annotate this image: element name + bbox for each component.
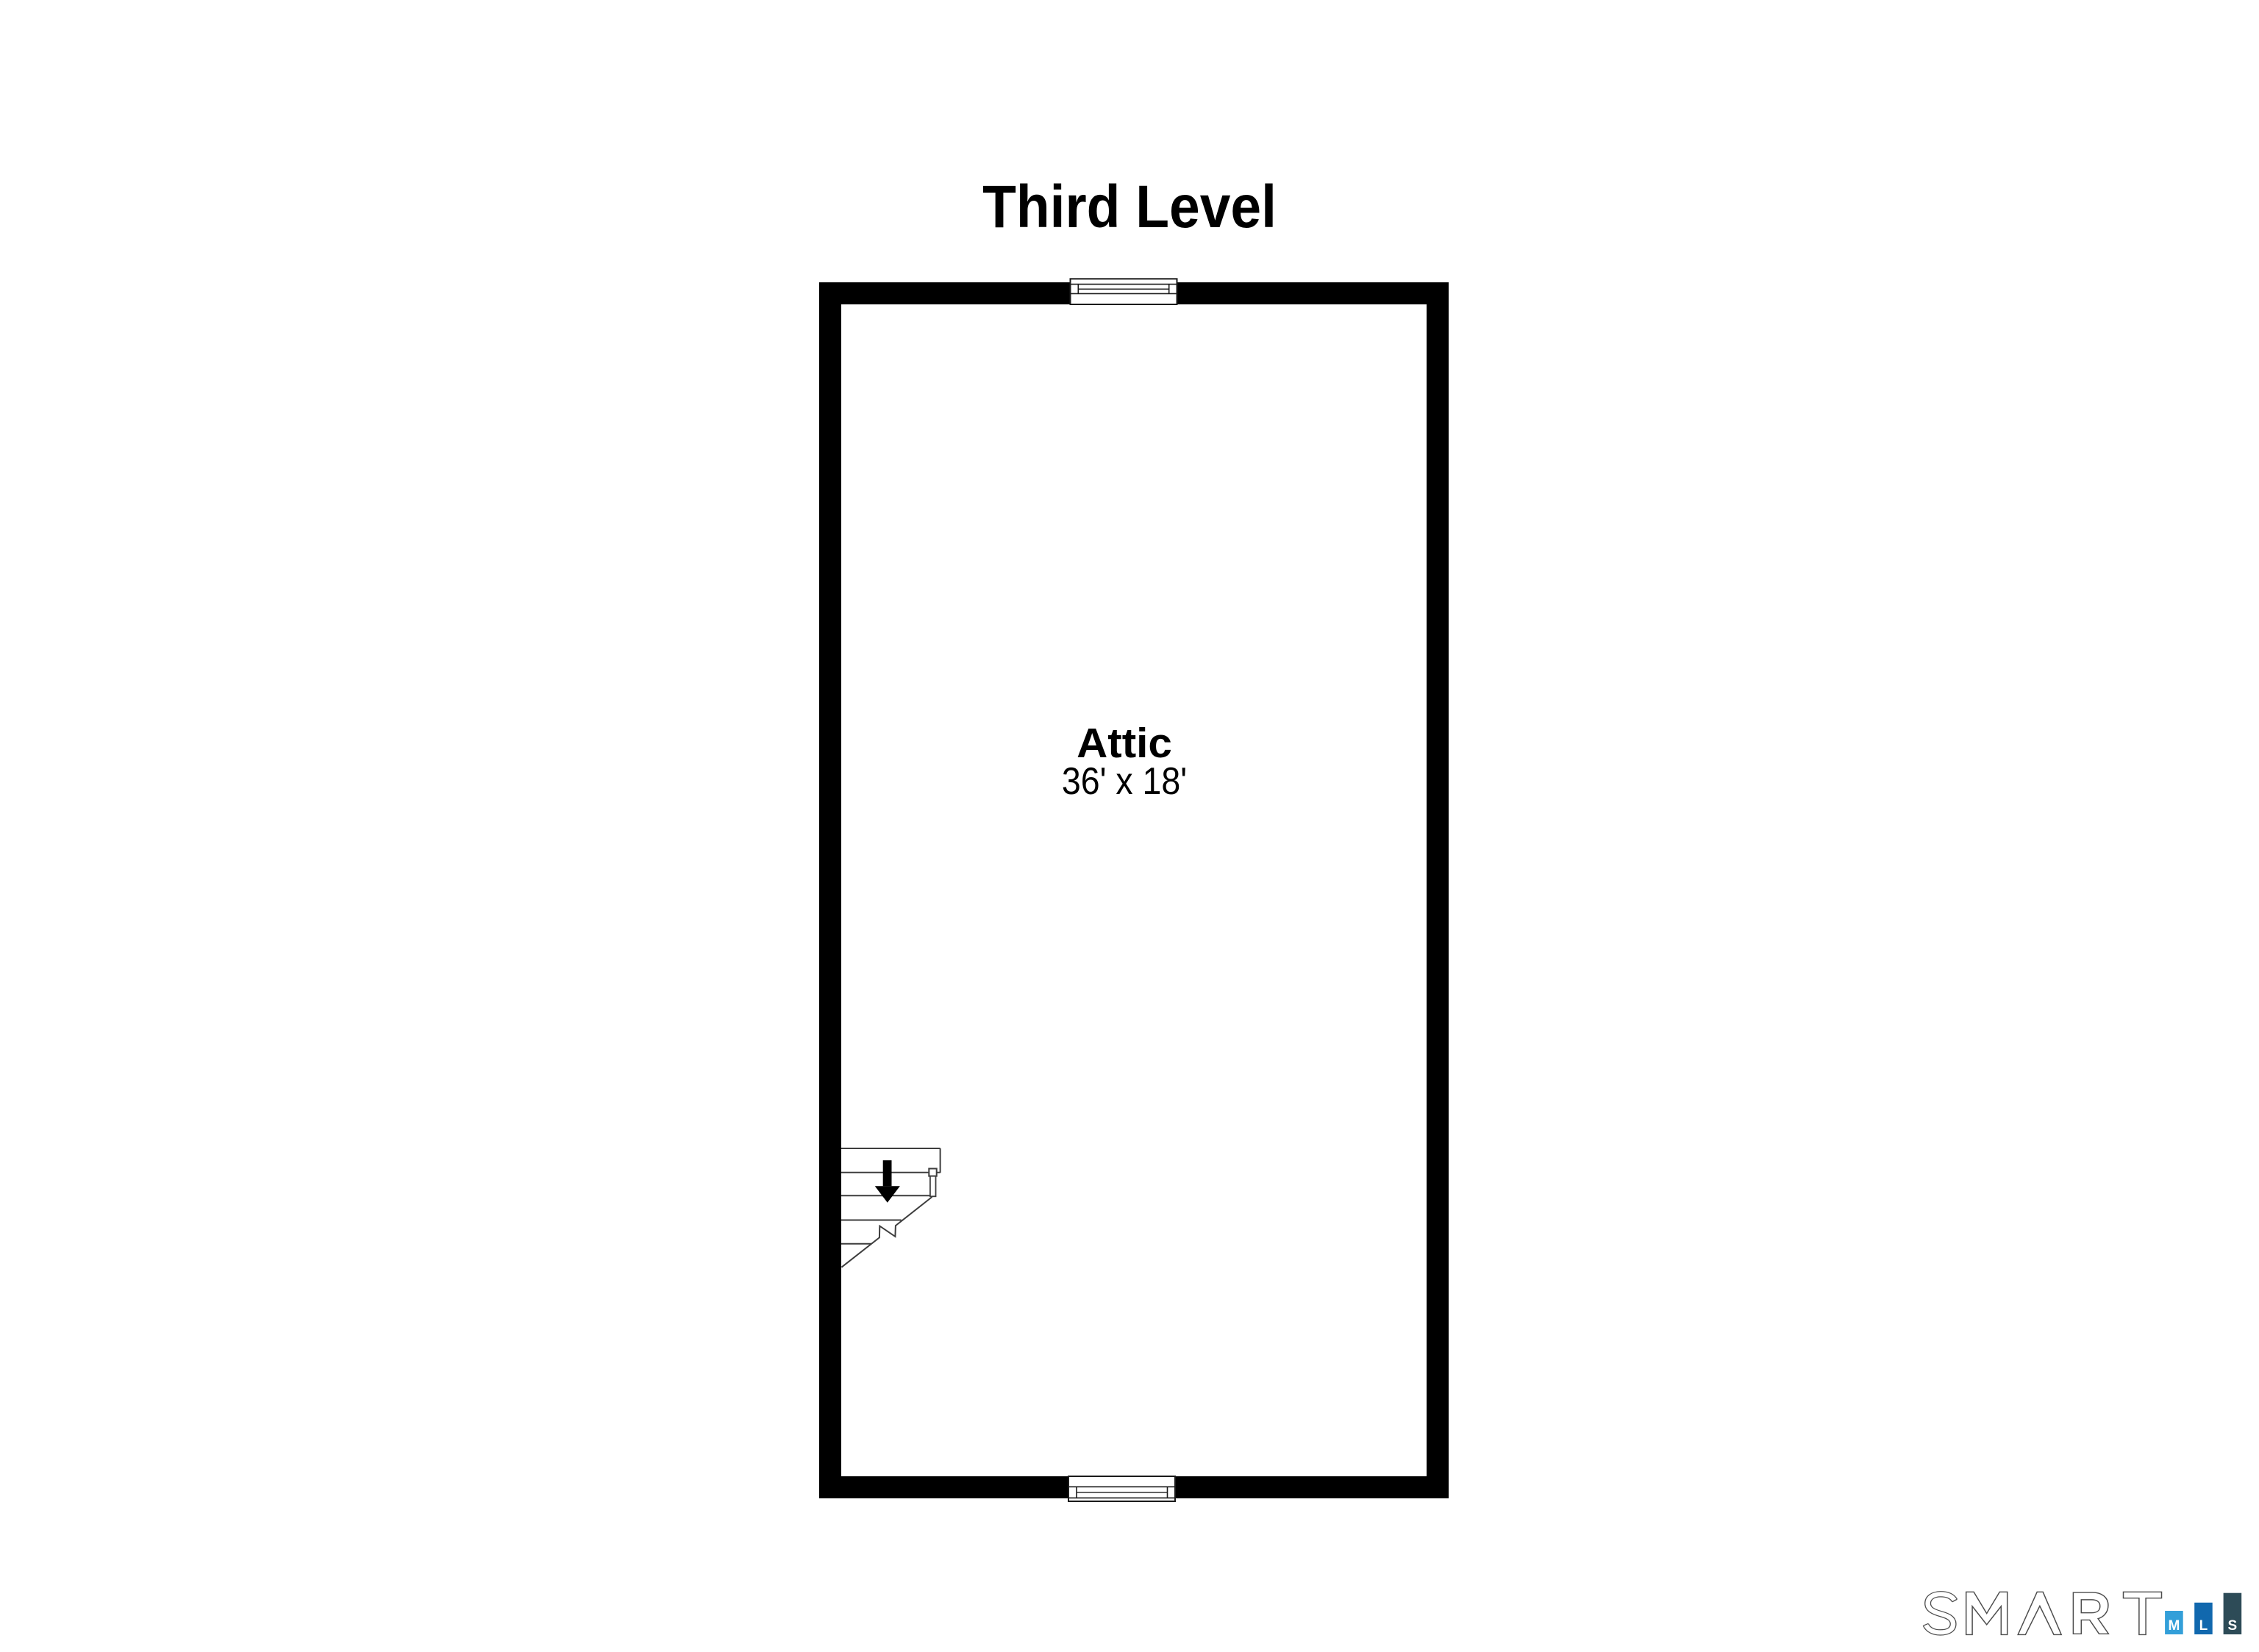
svg-text:S: S xyxy=(2228,1618,2238,1634)
svg-text:M: M xyxy=(2168,1618,2180,1634)
svg-text:L: L xyxy=(2199,1618,2208,1634)
